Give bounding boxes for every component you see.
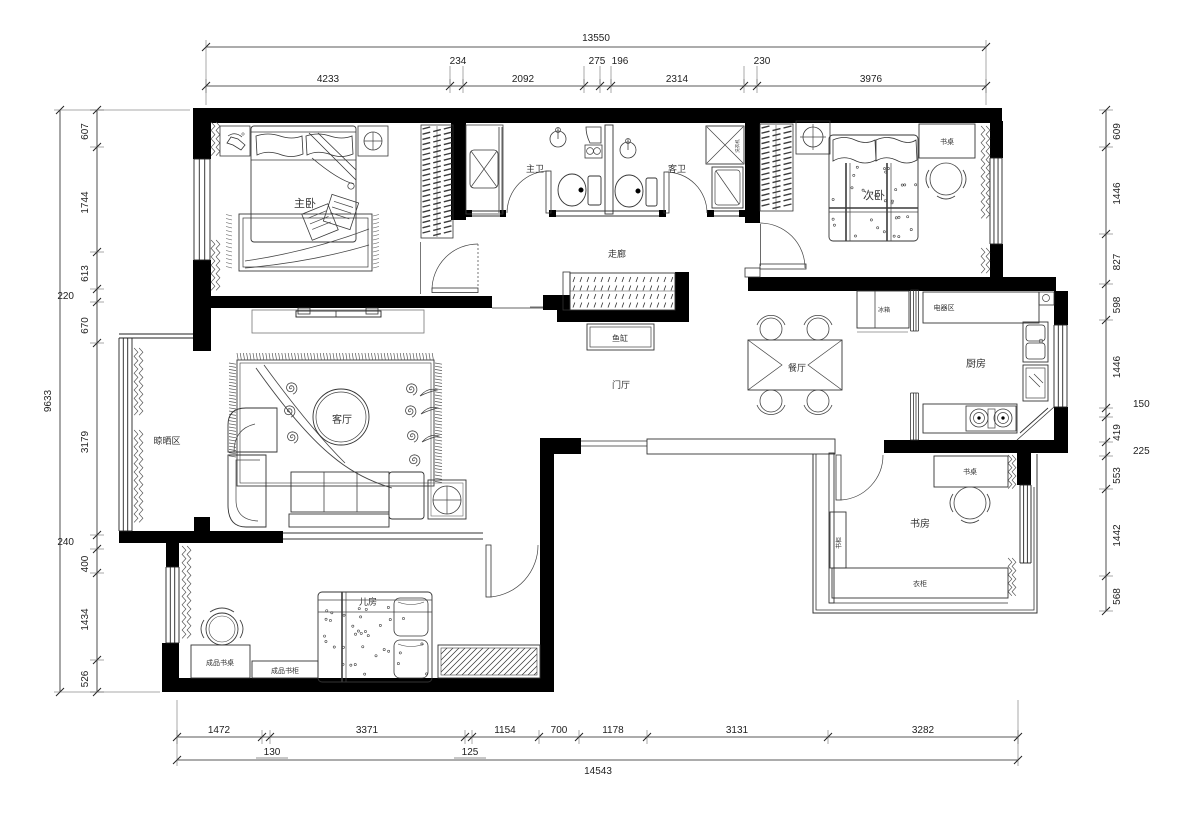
svg-text:晾晒区: 晾晒区 (153, 435, 180, 446)
svg-text:130: 130 (264, 747, 281, 758)
svg-text:成品书柜: 成品书柜 (271, 666, 299, 675)
svg-text:客厅: 客厅 (332, 413, 352, 426)
svg-text:冰箱: 冰箱 (878, 306, 890, 314)
svg-text:526: 526 (80, 670, 91, 687)
svg-text:4233: 4233 (317, 74, 340, 85)
svg-text:13550: 13550 (582, 33, 610, 44)
svg-text:400: 400 (80, 555, 91, 572)
svg-text:670: 670 (80, 317, 91, 334)
svg-text:2092: 2092 (512, 74, 535, 85)
svg-text:1446: 1446 (1112, 182, 1123, 205)
svg-text:700: 700 (551, 725, 568, 736)
svg-text:150: 150 (1133, 399, 1150, 410)
svg-text:儿房: 儿房 (359, 596, 377, 607)
svg-text:鱼缸: 鱼缸 (612, 333, 628, 343)
svg-text:1446: 1446 (1112, 355, 1123, 378)
svg-text:主卫: 主卫 (526, 163, 544, 174)
svg-text:书房: 书房 (910, 517, 930, 530)
svg-text:827: 827 (1112, 253, 1123, 270)
svg-text:234: 234 (450, 56, 467, 67)
svg-text:次卧: 次卧 (863, 188, 885, 202)
svg-text:275: 275 (589, 56, 606, 67)
svg-text:1154: 1154 (494, 725, 516, 736)
svg-text:客卫: 客卫 (668, 163, 686, 174)
svg-text:607: 607 (80, 123, 91, 140)
svg-text:598: 598 (1112, 296, 1123, 313)
svg-text:609: 609 (1112, 123, 1123, 140)
svg-text:洗衣机: 洗衣机 (734, 139, 741, 153)
svg-text:568: 568 (1112, 588, 1123, 605)
svg-text:419: 419 (1112, 424, 1123, 441)
svg-text:553: 553 (1112, 467, 1123, 484)
svg-text:走廊: 走廊 (608, 248, 626, 259)
svg-text:书桌: 书桌 (963, 467, 977, 476)
svg-text:1472: 1472 (208, 725, 231, 736)
svg-text:3371: 3371 (356, 725, 379, 736)
svg-text:3131: 3131 (726, 725, 749, 736)
svg-text:3179: 3179 (80, 430, 91, 453)
svg-text:主卧: 主卧 (294, 197, 316, 210)
svg-text:9633: 9633 (43, 389, 54, 412)
svg-text:2314: 2314 (666, 74, 689, 85)
svg-text:14543: 14543 (584, 766, 612, 777)
svg-text:书柜: 书柜 (835, 537, 843, 549)
svg-text:成品书桌: 成品书桌 (206, 658, 234, 667)
svg-text:厨房: 厨房 (966, 357, 986, 370)
svg-text:书桌: 书桌 (940, 137, 954, 146)
svg-text:衣柜: 衣柜 (913, 579, 927, 588)
svg-text:3976: 3976 (860, 74, 883, 85)
svg-text:1178: 1178 (602, 725, 624, 736)
svg-text:225: 225 (1133, 446, 1150, 457)
svg-text:门厅: 门厅 (612, 379, 630, 390)
svg-text:电器区: 电器区 (934, 303, 955, 312)
svg-text:125: 125 (462, 747, 479, 758)
svg-text:3282: 3282 (912, 725, 935, 736)
svg-text:餐厅: 餐厅 (788, 362, 806, 373)
svg-text:1434: 1434 (80, 608, 91, 631)
svg-text:613: 613 (80, 265, 91, 282)
svg-text:1744: 1744 (80, 191, 91, 214)
svg-text:230: 230 (754, 56, 771, 67)
svg-text:1442: 1442 (1112, 524, 1123, 547)
svg-text:196: 196 (612, 56, 629, 67)
